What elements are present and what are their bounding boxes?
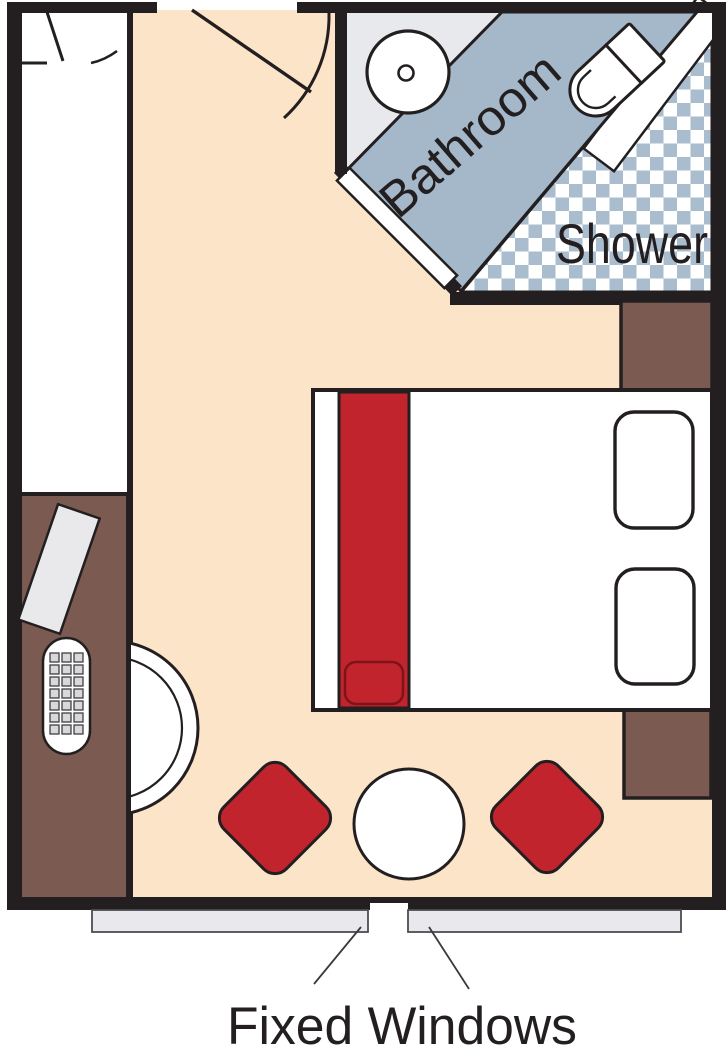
wall-top-right — [297, 2, 726, 13]
fixed-windows-label: Fixed Windows — [227, 997, 577, 1049]
closet-area — [20, 12, 128, 496]
sink-drain — [399, 66, 414, 81]
phone-keypad — [50, 653, 83, 734]
leader-line-right — [429, 927, 469, 989]
round-table — [354, 769, 464, 879]
floor-plan-svg: Bathroom Shower Fixed Windows — [0, 0, 726, 1049]
wardrobe — [621, 301, 712, 390]
wall-bathroom-left — [335, 2, 347, 174]
fixed-window-left — [92, 910, 368, 932]
bed-runner — [339, 392, 409, 708]
fixed-window-right — [408, 910, 681, 932]
window-mullion-gap — [370, 903, 408, 912]
pillow-top — [615, 412, 693, 528]
pillow-bottom — [616, 569, 694, 684]
nightstand — [624, 709, 711, 798]
wall-right — [712, 2, 726, 910]
leader-line-left — [314, 927, 361, 984]
shower-label: Shower — [556, 212, 708, 275]
wall-left — [7, 2, 22, 910]
floor-plan: Bathroom Shower Fixed Windows — [0, 0, 726, 1049]
desk-phone — [43, 638, 90, 754]
wall-bottom — [7, 897, 716, 910]
wall-top-left — [7, 2, 157, 13]
